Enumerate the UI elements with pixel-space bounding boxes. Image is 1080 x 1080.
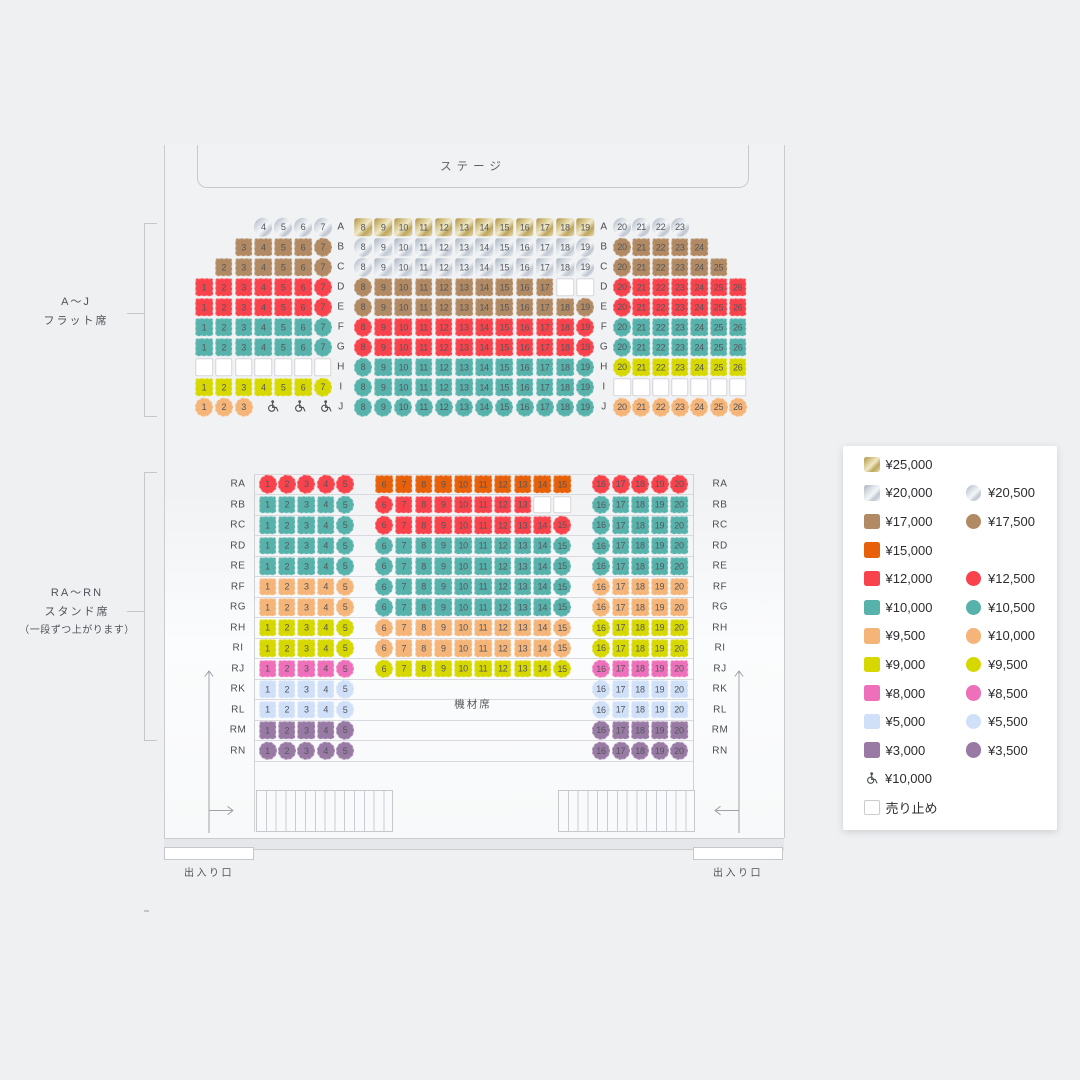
seat-G-20[interactable]: 20	[613, 338, 631, 357]
seat-RH-19[interactable]: 19	[651, 619, 669, 637]
seat-H-20[interactable]: 20	[613, 358, 631, 377]
seat-J-10[interactable]: 10	[394, 398, 412, 417]
seat-RL-16[interactable]: 16	[592, 700, 610, 719]
seat-RG-19[interactable]: 19	[651, 598, 669, 616]
seat-F-23[interactable]: 23	[671, 318, 689, 336]
seat-F-13[interactable]: 13	[455, 318, 473, 336]
seat-D-22[interactable]: 22	[652, 278, 670, 296]
seat-RM-5[interactable]: 5	[336, 721, 354, 740]
seat-RI-20[interactable]: 20	[670, 639, 688, 657]
seat-RM-4[interactable]: 4	[317, 721, 335, 739]
seat-I-10[interactable]: 10	[395, 378, 413, 396]
seat-RD-7[interactable]: 7	[395, 537, 413, 555]
seat-RF-17[interactable]: 17	[612, 578, 630, 596]
seat-RE-9[interactable]: 9	[435, 557, 453, 575]
seat-RI-8[interactable]: 8	[415, 639, 433, 657]
seat-RE-7[interactable]: 7	[395, 557, 413, 575]
seat-F-1[interactable]: 1	[195, 318, 213, 336]
seat-G-1[interactable]: 1	[195, 338, 213, 356]
seat-RE-18[interactable]: 18	[631, 557, 649, 575]
seat-RI-7[interactable]: 7	[395, 639, 413, 657]
seat-I-6[interactable]: 6	[294, 378, 312, 396]
seat-G-5[interactable]: 5	[274, 338, 292, 356]
seat-I-17[interactable]: 17	[536, 378, 554, 396]
seat-RA-9[interactable]: 9	[435, 475, 453, 493]
seat-RF-10[interactable]: 10	[454, 578, 472, 596]
seat-H-10[interactable]: 10	[395, 358, 413, 376]
seat-RD-9[interactable]: 9	[435, 537, 453, 555]
seat-H-9[interactable]: 9	[374, 358, 392, 376]
seat-RE-10[interactable]: 10	[454, 557, 472, 575]
seat-RI-2[interactable]: 2	[278, 639, 296, 657]
seat-B-12[interactable]: 12	[435, 238, 453, 256]
seat-RI-16[interactable]: 16	[592, 639, 610, 658]
seat-J-16[interactable]: 16	[516, 398, 534, 417]
seat-I-18[interactable]: 18	[556, 378, 574, 396]
seat-RH-3[interactable]: 3	[298, 619, 316, 637]
seat-RN-20[interactable]: 20	[670, 741, 688, 760]
seat-RC-8[interactable]: 8	[415, 516, 433, 534]
seat-E-20[interactable]: 20	[613, 298, 631, 317]
seat-D-13[interactable]: 13	[455, 278, 473, 296]
seat-H-17[interactable]: 17	[536, 358, 554, 376]
seat-C-18[interactable]: 18	[556, 258, 574, 276]
seat-RA-18[interactable]: 18	[631, 475, 649, 494]
seat-RL-20[interactable]: 20	[670, 701, 688, 719]
seat-RG-8[interactable]: 8	[415, 598, 433, 616]
seat-RF-20[interactable]: 20	[670, 578, 688, 596]
seat-RJ-18[interactable]: 18	[631, 660, 649, 678]
seat-RI-4[interactable]: 4	[317, 639, 335, 657]
seat-RD-18[interactable]: 18	[631, 537, 649, 555]
seat-RB-19[interactable]: 19	[651, 496, 669, 514]
seat-RJ-16[interactable]: 16	[592, 659, 610, 678]
seat-RI-19[interactable]: 19	[651, 639, 669, 657]
seat-G-18[interactable]: 18	[556, 338, 574, 356]
seat-RB-5[interactable]: 5	[336, 495, 354, 514]
seat-RG-4[interactable]: 4	[317, 598, 335, 616]
seat-RE-8[interactable]: 8	[415, 557, 433, 575]
seat-RD-10[interactable]: 10	[454, 537, 472, 555]
seat-RH-5[interactable]: 5	[336, 618, 354, 637]
seat-F-15[interactable]: 15	[496, 318, 514, 336]
seat-RC-5[interactable]: 5	[336, 516, 354, 535]
seat-B-3[interactable]: 3	[235, 238, 253, 256]
seat-G-6[interactable]: 6	[294, 338, 312, 356]
seat-B-4[interactable]: 4	[255, 238, 273, 256]
seat-B-8[interactable]: 8	[354, 238, 372, 257]
seat-RA-16[interactable]: 16	[592, 475, 610, 494]
seat-RD-5[interactable]: 5	[336, 536, 354, 555]
seat-RK-20[interactable]: 20	[670, 680, 688, 698]
seat-I-16[interactable]: 16	[516, 378, 534, 396]
seat-C-13[interactable]: 13	[455, 258, 473, 276]
seat-F-7[interactable]: 7	[314, 318, 332, 337]
seat-RL-3[interactable]: 3	[298, 701, 316, 719]
seat-B-5[interactable]: 5	[274, 238, 292, 256]
seat-J-25[interactable]: 25	[710, 398, 728, 417]
seat-RG-9[interactable]: 9	[435, 598, 453, 616]
seat-G-19[interactable]: 19	[576, 338, 594, 357]
seat-J-26[interactable]: 26	[729, 398, 747, 417]
seat-RG-10[interactable]: 10	[454, 598, 472, 616]
seat-RG-3[interactable]: 3	[298, 598, 316, 616]
seat-RN-19[interactable]: 19	[651, 741, 669, 760]
seat-H-19[interactable]: 19	[576, 358, 594, 377]
seat-F-20[interactable]: 20	[613, 318, 631, 337]
seat-RH-17[interactable]: 17	[612, 619, 630, 637]
seat-RC-15[interactable]: 15	[553, 516, 571, 535]
seat-D-7[interactable]: 7	[314, 278, 332, 297]
seat-RE-11[interactable]: 11	[474, 557, 492, 575]
seat-D-23[interactable]: 23	[671, 278, 689, 296]
seat-RC-16[interactable]: 16	[592, 516, 610, 535]
seat-C-23[interactable]: 23	[671, 258, 689, 276]
seat-RH-1[interactable]: 1	[259, 619, 277, 637]
seat-RI-1[interactable]: 1	[259, 639, 277, 657]
seat-RE-6[interactable]: 6	[375, 557, 393, 576]
seat-RB-1[interactable]: 1	[259, 496, 277, 514]
seat-J-13[interactable]: 13	[455, 398, 473, 417]
seat-C-12[interactable]: 12	[435, 258, 453, 276]
seat-B-10[interactable]: 10	[395, 238, 413, 256]
seat-RF-15[interactable]: 15	[553, 577, 571, 596]
seat-A-20[interactable]: 20	[613, 218, 631, 237]
seat-C-11[interactable]: 11	[415, 258, 433, 276]
seat-RJ-14[interactable]: 14	[534, 660, 552, 678]
seat-E-2[interactable]: 2	[215, 298, 233, 316]
seat-RN-1[interactable]: 1	[259, 741, 277, 760]
seat-D-9[interactable]: 9	[374, 278, 392, 296]
seat-I-4[interactable]: 4	[255, 378, 273, 396]
seat-RC-3[interactable]: 3	[298, 516, 316, 534]
seat-E-18[interactable]: 18	[556, 298, 574, 316]
seat-F-24[interactable]: 24	[690, 318, 708, 336]
seat-C-10[interactable]: 10	[395, 258, 413, 276]
seat-RN-4[interactable]: 4	[317, 741, 335, 760]
seat-RK-2[interactable]: 2	[278, 680, 296, 698]
seat-RC-20[interactable]: 20	[670, 516, 688, 534]
seat-C-19[interactable]: 19	[576, 258, 594, 277]
seat-I-12[interactable]: 12	[435, 378, 453, 396]
seat-RH-4[interactable]: 4	[317, 619, 335, 637]
seat-H-15[interactable]: 15	[496, 358, 514, 376]
seat-RM-16[interactable]: 16	[592, 721, 610, 740]
seat-RJ-2[interactable]: 2	[278, 660, 296, 678]
seat-G-16[interactable]: 16	[516, 338, 534, 356]
seat-D-25[interactable]: 25	[710, 278, 728, 296]
seat-RF-13[interactable]: 13	[514, 578, 532, 596]
seat-F-9[interactable]: 9	[374, 318, 392, 336]
seat-E-11[interactable]: 11	[415, 298, 433, 316]
seat-RC-19[interactable]: 19	[651, 516, 669, 534]
seat-RA-5[interactable]: 5	[336, 475, 354, 494]
seat-G-26[interactable]: 26	[729, 338, 747, 356]
seat-RN-18[interactable]: 18	[631, 741, 649, 760]
seat-J-18[interactable]: 18	[556, 398, 574, 417]
seat-C-21[interactable]: 21	[633, 258, 651, 276]
seat-RB-12[interactable]: 12	[494, 496, 512, 514]
seat-H-8[interactable]: 8	[354, 358, 372, 377]
seat-C-25[interactable]: 25	[710, 258, 728, 276]
seat-RG-13[interactable]: 13	[514, 598, 532, 616]
seat-RM-1[interactable]: 1	[259, 721, 277, 739]
seat-I-1[interactable]: 1	[195, 378, 213, 396]
seat-RE-2[interactable]: 2	[278, 557, 296, 575]
seat-RF-14[interactable]: 14	[534, 578, 552, 596]
seat-H-18[interactable]: 18	[556, 358, 574, 376]
seat-RA-4[interactable]: 4	[317, 475, 335, 494]
seat-G-14[interactable]: 14	[475, 338, 493, 356]
seat-G-24[interactable]: 24	[690, 338, 708, 356]
seat-C-3[interactable]: 3	[235, 258, 253, 276]
seat-RD-13[interactable]: 13	[514, 537, 532, 555]
seat-RG-20[interactable]: 20	[670, 598, 688, 616]
seat-E-22[interactable]: 22	[652, 298, 670, 316]
seat-RD-20[interactable]: 20	[670, 537, 688, 555]
seat-RA-3[interactable]: 3	[297, 475, 315, 494]
seat-A-9[interactable]: 9	[374, 218, 392, 236]
seat-E-6[interactable]: 6	[294, 298, 312, 316]
seat-G-15[interactable]: 15	[496, 338, 514, 356]
seat-A-22[interactable]: 22	[652, 218, 670, 237]
seat-B-21[interactable]: 21	[633, 238, 651, 256]
seat-RA-1[interactable]: 1	[259, 475, 277, 494]
seat-RF-18[interactable]: 18	[631, 578, 649, 596]
seat-F-22[interactable]: 22	[652, 318, 670, 336]
seat-RK-5[interactable]: 5	[336, 680, 354, 699]
seat-RG-18[interactable]: 18	[631, 598, 649, 616]
seat-A-21[interactable]: 21	[632, 218, 650, 237]
seat-RM-2[interactable]: 2	[278, 721, 296, 739]
seat-J-11[interactable]: 11	[415, 398, 433, 417]
seat-D-14[interactable]: 14	[475, 278, 493, 296]
seat-RM-20[interactable]: 20	[670, 721, 688, 739]
seat-A-19[interactable]: 19	[576, 218, 594, 236]
seat-H-11[interactable]: 11	[415, 358, 433, 376]
seat-RK-3[interactable]: 3	[298, 680, 316, 698]
seat-F-8[interactable]: 8	[354, 318, 372, 337]
seat-B-15[interactable]: 15	[496, 238, 514, 256]
seat-RA-6[interactable]: 6	[375, 475, 393, 493]
seat-RI-13[interactable]: 13	[514, 639, 532, 657]
seat-RE-17[interactable]: 17	[612, 557, 630, 575]
seat-RJ-10[interactable]: 10	[454, 660, 472, 678]
seat-RN-3[interactable]: 3	[297, 741, 315, 760]
seat-RH-10[interactable]: 10	[454, 619, 472, 637]
seat-E-4[interactable]: 4	[255, 298, 273, 316]
seat-C-20[interactable]: 20	[613, 258, 631, 277]
seat-D-1[interactable]: 1	[195, 278, 213, 296]
seat-RF-4[interactable]: 4	[317, 578, 335, 596]
seat-B-23[interactable]: 23	[671, 238, 689, 256]
seat-RG-14[interactable]: 14	[534, 598, 552, 616]
seat-D-4[interactable]: 4	[255, 278, 273, 296]
seat-C-6[interactable]: 6	[294, 258, 312, 276]
seat-RL-18[interactable]: 18	[631, 701, 649, 719]
seat-RA-11[interactable]: 11	[474, 475, 492, 493]
seat-I-15[interactable]: 15	[496, 378, 514, 396]
seat-G-12[interactable]: 12	[435, 338, 453, 356]
seat-E-3[interactable]: 3	[235, 298, 253, 316]
seat-H-13[interactable]: 13	[455, 358, 473, 376]
seat-E-13[interactable]: 13	[455, 298, 473, 316]
seat-A-23[interactable]: 23	[671, 218, 689, 237]
seat-RJ-19[interactable]: 19	[651, 660, 669, 678]
seat-RL-2[interactable]: 2	[278, 701, 296, 719]
seat-RG-5[interactable]: 5	[336, 598, 354, 617]
seat-A-14[interactable]: 14	[475, 218, 493, 236]
seat-RJ-12[interactable]: 12	[494, 660, 512, 678]
seat-D-26[interactable]: 26	[729, 278, 747, 296]
seat-RG-11[interactable]: 11	[474, 598, 492, 616]
seat-RE-15[interactable]: 15	[553, 557, 571, 576]
seat-RC-14[interactable]: 14	[534, 516, 552, 534]
seat-RE-19[interactable]: 19	[651, 557, 669, 575]
seat-RD-6[interactable]: 6	[375, 536, 393, 555]
seat-E-23[interactable]: 23	[671, 298, 689, 316]
seat-RB-17[interactable]: 17	[612, 496, 630, 514]
seat-RB-13[interactable]: 13	[514, 496, 532, 514]
seat-E-10[interactable]: 10	[395, 298, 413, 316]
seat-H-23[interactable]: 23	[671, 358, 689, 376]
seat-A-18[interactable]: 18	[556, 218, 574, 236]
seat-RB-9[interactable]: 9	[435, 496, 453, 514]
seat-D-21[interactable]: 21	[633, 278, 651, 296]
seat-RH-16[interactable]: 16	[592, 618, 610, 637]
seat-RH-9[interactable]: 9	[435, 619, 453, 637]
seat-D-5[interactable]: 5	[274, 278, 292, 296]
seat-RN-17[interactable]: 17	[612, 741, 630, 760]
seat-B-6[interactable]: 6	[294, 238, 312, 256]
seat-E-24[interactable]: 24	[690, 298, 708, 316]
seat-RG-15[interactable]: 15	[553, 598, 571, 617]
seat-RJ-15[interactable]: 15	[553, 659, 571, 678]
seat-RC-9[interactable]: 9	[435, 516, 453, 534]
seat-G-17[interactable]: 17	[536, 338, 554, 356]
seat-RG-16[interactable]: 16	[592, 598, 610, 617]
seat-E-1[interactable]: 1	[195, 298, 213, 316]
seat-RF-12[interactable]: 12	[494, 578, 512, 596]
seat-B-7[interactable]: 7	[314, 238, 332, 257]
seat-A-8[interactable]: 8	[354, 218, 372, 236]
seat-I-14[interactable]: 14	[475, 378, 493, 396]
seat-RH-2[interactable]: 2	[278, 619, 296, 637]
seat-RD-4[interactable]: 4	[317, 537, 335, 555]
seat-J-22[interactable]: 22	[652, 398, 670, 417]
seat-RB-16[interactable]: 16	[592, 495, 610, 514]
seat-A-11[interactable]: 11	[415, 218, 433, 236]
seat-RB-18[interactable]: 18	[631, 496, 649, 514]
seat-I-19[interactable]: 19	[576, 378, 594, 397]
seat-RG-7[interactable]: 7	[395, 598, 413, 616]
seat-RB-11[interactable]: 11	[474, 496, 492, 514]
seat-D-20[interactable]: 20	[613, 278, 631, 297]
seat-J-9[interactable]: 9	[374, 398, 392, 417]
seat-I-2[interactable]: 2	[215, 378, 233, 396]
seat-A-13[interactable]: 13	[455, 218, 473, 236]
seat-E-12[interactable]: 12	[435, 298, 453, 316]
seat-RF-9[interactable]: 9	[435, 578, 453, 596]
seat-RK-17[interactable]: 17	[612, 680, 630, 698]
seat-F-4[interactable]: 4	[255, 318, 273, 336]
seat-RI-15[interactable]: 15	[553, 639, 571, 658]
seat-D-17[interactable]: 17	[536, 278, 554, 296]
seat-F-17[interactable]: 17	[536, 318, 554, 336]
seat-RF-2[interactable]: 2	[278, 578, 296, 596]
seat-RJ-20[interactable]: 20	[670, 660, 688, 678]
seat-C-22[interactable]: 22	[652, 258, 670, 276]
seat-RI-17[interactable]: 17	[612, 639, 630, 657]
seat-G-11[interactable]: 11	[415, 338, 433, 356]
seat-J-19[interactable]: 19	[576, 398, 594, 417]
seat-wheelchair-J[interactable]	[291, 398, 309, 416]
seat-G-21[interactable]: 21	[633, 338, 651, 356]
seat-RD-2[interactable]: 2	[278, 537, 296, 555]
seat-D-24[interactable]: 24	[690, 278, 708, 296]
seat-RJ-11[interactable]: 11	[474, 660, 492, 678]
seat-I-11[interactable]: 11	[415, 378, 433, 396]
seat-RG-1[interactable]: 1	[259, 598, 277, 616]
seat-RD-17[interactable]: 17	[612, 537, 630, 555]
seat-B-16[interactable]: 16	[516, 238, 534, 256]
seat-B-11[interactable]: 11	[415, 238, 433, 256]
seat-RJ-17[interactable]: 17	[612, 660, 630, 678]
seat-RI-11[interactable]: 11	[474, 639, 492, 657]
seat-J-2[interactable]: 2	[215, 398, 233, 417]
seat-J-15[interactable]: 15	[495, 398, 513, 417]
seat-G-8[interactable]: 8	[354, 338, 372, 357]
seat-RE-3[interactable]: 3	[298, 557, 316, 575]
seat-H-16[interactable]: 16	[516, 358, 534, 376]
seat-F-2[interactable]: 2	[215, 318, 233, 336]
seat-H-24[interactable]: 24	[690, 358, 708, 376]
seat-J-17[interactable]: 17	[536, 398, 554, 417]
seat-RD-3[interactable]: 3	[298, 537, 316, 555]
seat-RA-7[interactable]: 7	[395, 475, 413, 493]
seat-E-21[interactable]: 21	[633, 298, 651, 316]
seat-B-14[interactable]: 14	[475, 238, 493, 256]
seat-J-24[interactable]: 24	[690, 398, 708, 417]
seat-A-16[interactable]: 16	[516, 218, 534, 236]
seat-RG-17[interactable]: 17	[612, 598, 630, 616]
seat-RJ-5[interactable]: 5	[336, 659, 354, 678]
seat-RJ-8[interactable]: 8	[415, 660, 433, 678]
seat-RK-16[interactable]: 16	[592, 680, 610, 699]
seat-RE-20[interactable]: 20	[670, 557, 688, 575]
seat-RC-2[interactable]: 2	[278, 516, 296, 534]
seat-RK-18[interactable]: 18	[631, 680, 649, 698]
seat-F-21[interactable]: 21	[633, 318, 651, 336]
seat-RF-7[interactable]: 7	[395, 578, 413, 596]
seat-RB-20[interactable]: 20	[670, 496, 688, 514]
seat-D-15[interactable]: 15	[496, 278, 514, 296]
seat-RL-19[interactable]: 19	[651, 701, 669, 719]
seat-B-13[interactable]: 13	[455, 238, 473, 256]
seat-RF-19[interactable]: 19	[651, 578, 669, 596]
seat-C-7[interactable]: 7	[314, 258, 332, 277]
seat-E-15[interactable]: 15	[496, 298, 514, 316]
seat-RE-12[interactable]: 12	[494, 557, 512, 575]
seat-F-11[interactable]: 11	[415, 318, 433, 336]
seat-A-6[interactable]: 6	[294, 218, 312, 237]
seat-wheelchair-J[interactable]	[317, 398, 335, 416]
seat-B-24[interactable]: 24	[690, 238, 708, 256]
seat-F-12[interactable]: 12	[435, 318, 453, 336]
seat-B-9[interactable]: 9	[374, 238, 392, 256]
seat-RE-5[interactable]: 5	[336, 557, 354, 576]
seat-I-5[interactable]: 5	[274, 378, 292, 396]
